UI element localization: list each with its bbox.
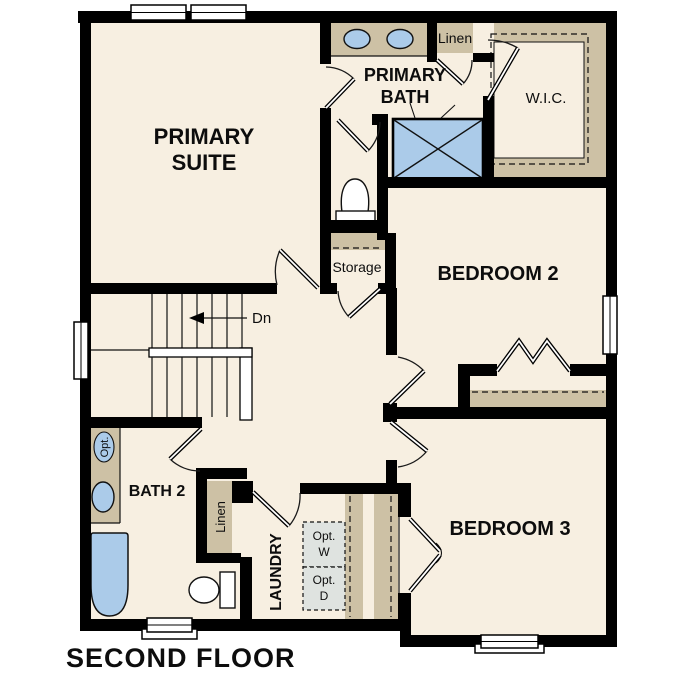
stairs-down-label: Dn	[252, 310, 271, 327]
wall-segment	[427, 11, 437, 62]
wic-shelf-right	[584, 23, 606, 177]
linen-primary-label: Linen	[438, 30, 472, 46]
floor-plan: Dn	[0, 0, 687, 687]
wall-segment	[240, 557, 252, 631]
wall-segment	[483, 96, 494, 188]
stair-railing-horizontal	[149, 348, 252, 357]
wall-segment	[383, 403, 397, 422]
wall-segment	[320, 11, 331, 64]
wall-segment	[300, 483, 411, 494]
wc-toilet-tank	[336, 211, 375, 221]
laundry-shelf	[345, 494, 363, 619]
wall-segment	[398, 487, 411, 517]
linen-hall-label: Linen	[213, 501, 228, 533]
wall-segment	[196, 553, 241, 563]
optional-washer-label-2: W	[318, 545, 330, 559]
wall-segment	[397, 407, 617, 419]
bath2-sink	[92, 482, 114, 512]
wall-segment	[80, 417, 202, 428]
stair-railing-vertical	[240, 348, 252, 420]
primary-suite-label-2: SUITE	[172, 150, 237, 175]
bathtub	[91, 533, 128, 616]
optional-washer-label-1: Opt.	[313, 529, 336, 543]
bath2-toilet-tank	[220, 572, 235, 608]
wall-segment	[320, 108, 331, 294]
wall-segment	[80, 283, 277, 294]
plan-title: SECOND FLOOR	[66, 643, 296, 673]
wall-segment	[570, 364, 607, 376]
bedroom2-label: BEDROOM 2	[437, 263, 558, 285]
primary-bath-label-2: BATH	[381, 87, 430, 107]
bath2-toilet-bowl	[189, 577, 219, 603]
wall-segment	[386, 288, 397, 355]
wall-segment	[80, 11, 91, 631]
bedroom3-label: BEDROOM 3	[449, 518, 570, 540]
wall-segment	[320, 220, 388, 233]
wall-segment	[398, 593, 411, 631]
storage-label: Storage	[332, 259, 381, 275]
primary-bath-label-1: PRIMARY	[364, 65, 446, 85]
wall-segment	[232, 481, 253, 503]
wall-segment	[196, 468, 247, 479]
wall-segment	[320, 283, 337, 294]
wall-segment	[473, 53, 494, 62]
bedroom3-closet-shelf	[374, 494, 398, 619]
wall-segment	[388, 177, 617, 188]
floor-plan-svg: Dn	[0, 0, 687, 687]
wic-label: W.I.C.	[526, 90, 567, 107]
optional-sink-label: Opt.	[99, 437, 111, 458]
vanity-sink-left	[344, 30, 370, 49]
wic-shelf-bottom	[494, 158, 606, 177]
wall-segment	[196, 468, 207, 563]
primary-suite-label-1: PRIMARY	[154, 124, 255, 149]
optional-dryer-label-1: Opt.	[313, 573, 336, 587]
wc-toilet-bowl	[341, 179, 368, 212]
optional-dryer-label-2: D	[320, 589, 329, 603]
bath2-label: BATH 2	[129, 483, 186, 500]
laundry-label: LAUNDRY	[268, 533, 285, 611]
vanity-sink-right	[387, 30, 413, 49]
